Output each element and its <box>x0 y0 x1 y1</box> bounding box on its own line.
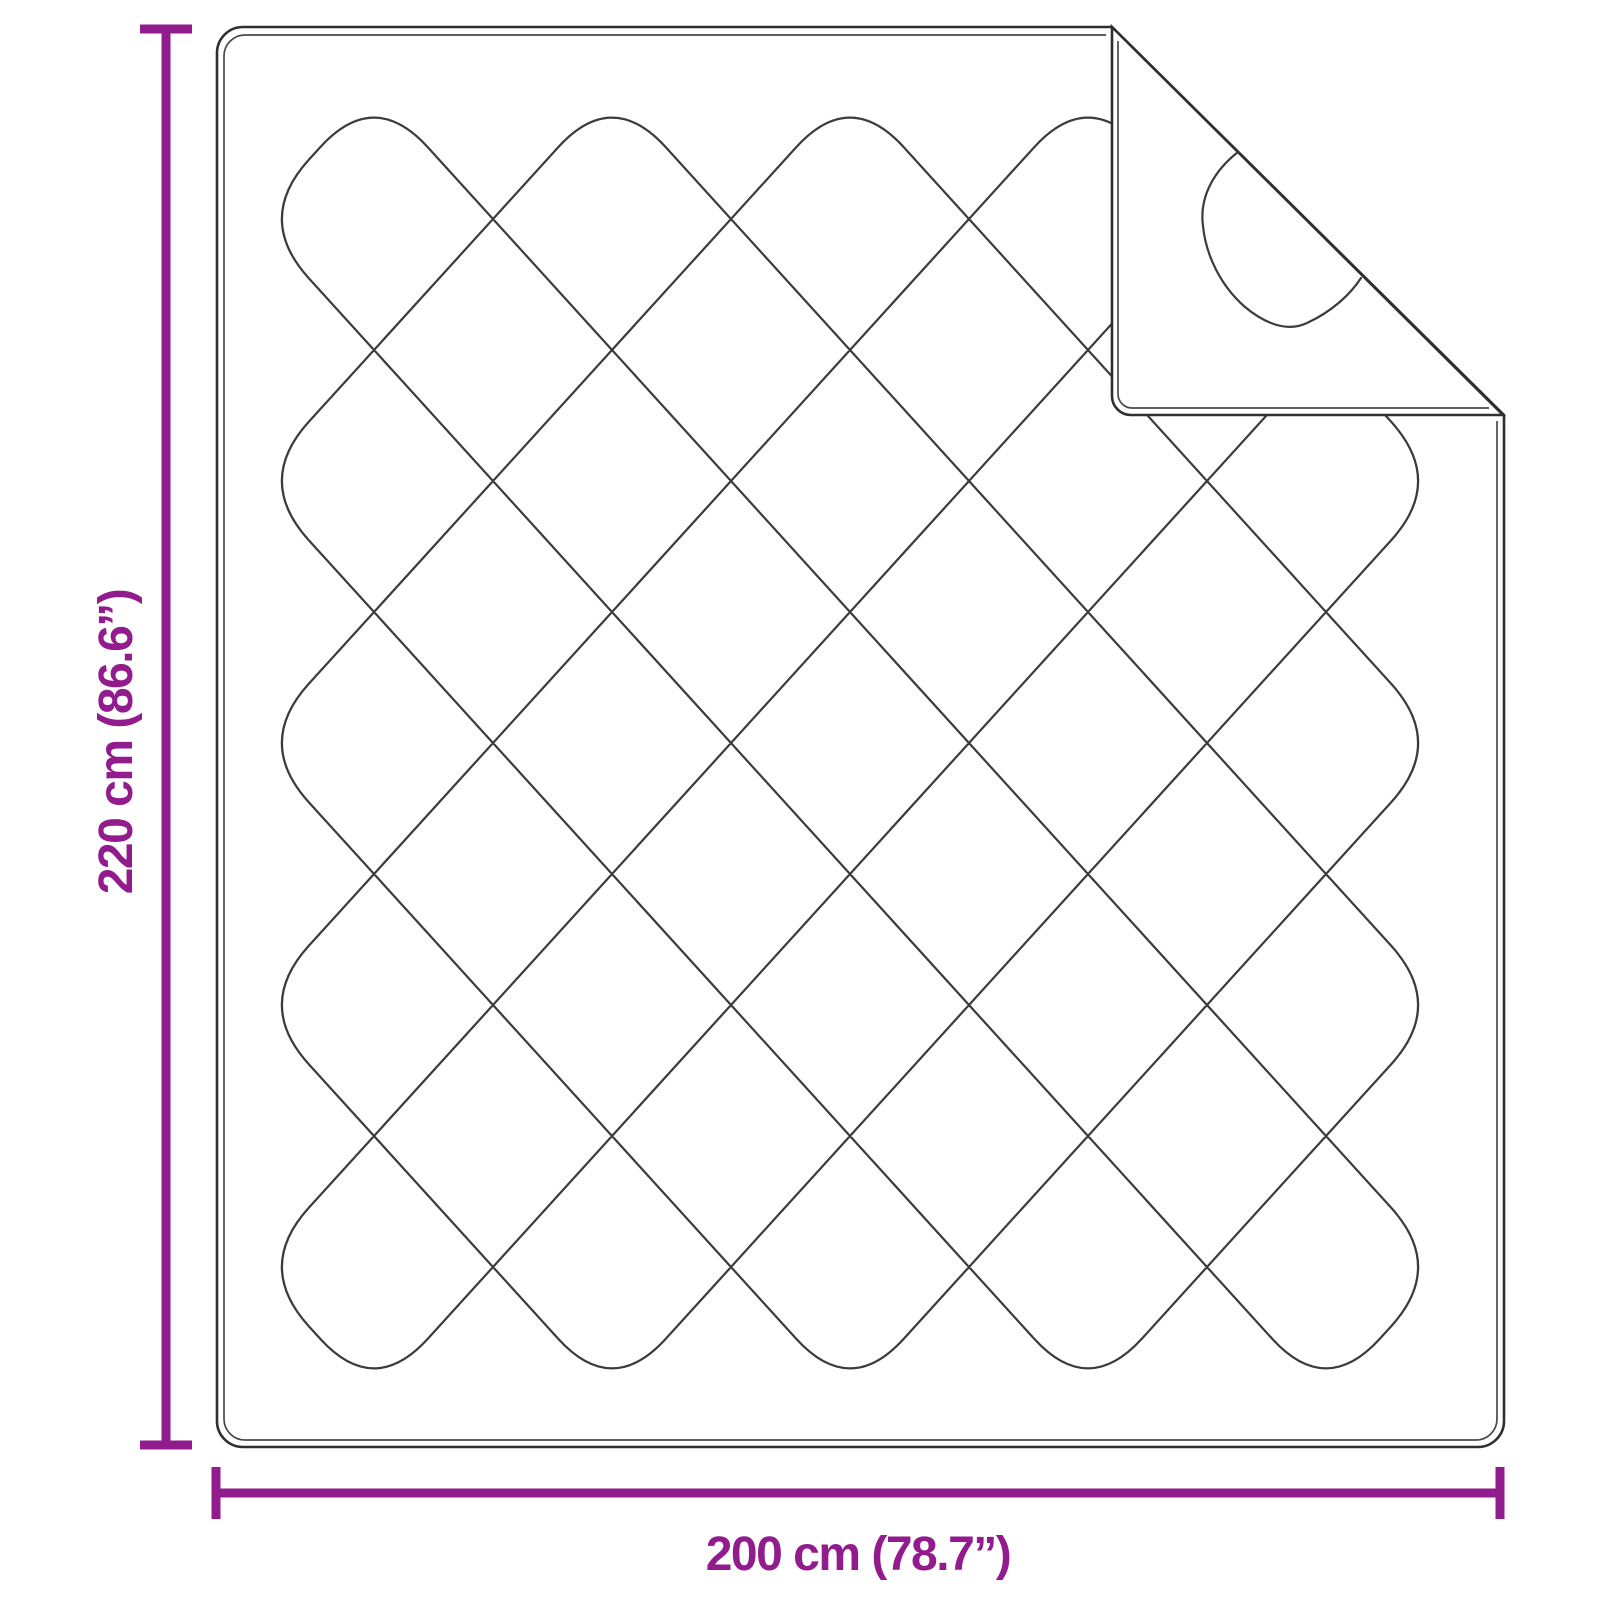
width-dimension-label: 200 cm (78.7”) <box>706 1528 1011 1581</box>
height-dimension-label: 220 cm (86.6”) <box>90 590 143 895</box>
height-dimension: 220 cm (86.6”) <box>90 29 192 1445</box>
folded-corner <box>1112 27 1503 415</box>
corner-flap <box>1112 27 1503 415</box>
width-dimension: 200 cm (78.7”) <box>216 1467 1500 1581</box>
product-dimension-diagram: 220 cm (86.6”) 200 cm (78.7”) <box>0 0 1600 1600</box>
blanket-dimension-drawing: 220 cm (86.6”) 200 cm (78.7”) <box>0 0 1600 1600</box>
blanket <box>217 27 1504 1447</box>
